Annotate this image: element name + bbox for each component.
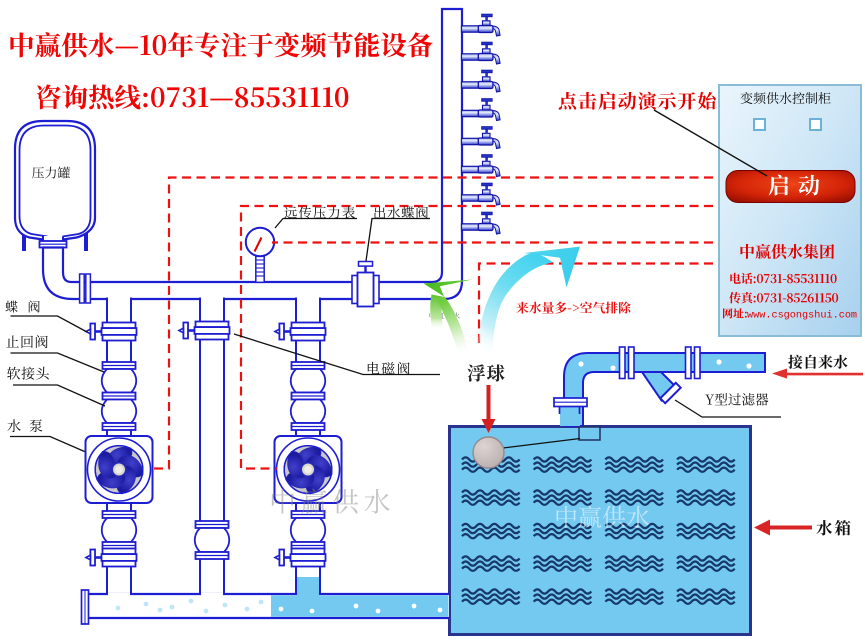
svg-text:www.csgongshui.com: www.csgongshui.com: [747, 310, 857, 322]
